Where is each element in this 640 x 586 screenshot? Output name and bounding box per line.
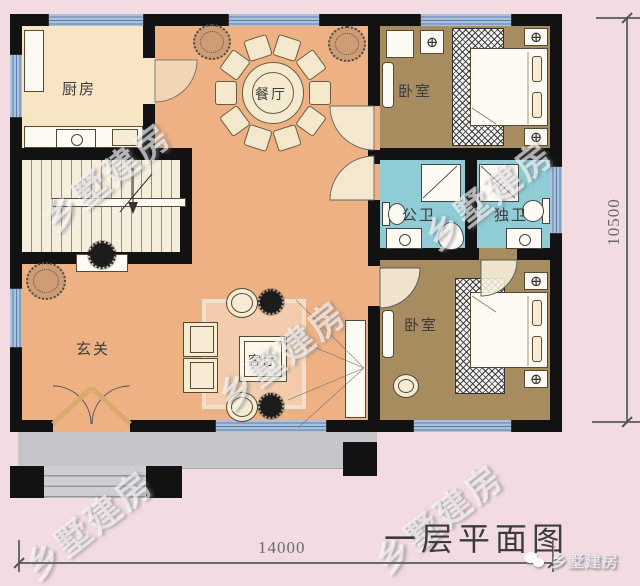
nightstand-lamp-icon: ⊕ — [524, 370, 548, 388]
dimension-ext-line — [596, 17, 640, 19]
porch-column-left — [10, 466, 44, 498]
plant-icon — [193, 24, 231, 60]
brand-bubbles-icon — [524, 552, 548, 569]
bath-sink — [386, 228, 422, 249]
dimension-label-bottom: 14000 — [258, 538, 306, 558]
armchair — [183, 322, 218, 357]
fridge — [24, 30, 44, 92]
room-label-bedroom-bottom: 卧室 — [404, 314, 438, 335]
side-cabinet — [382, 310, 394, 358]
bedroom-top-seat — [386, 30, 414, 58]
plant-icon — [260, 291, 282, 313]
nightstand-lamp-icon: ⊕ — [524, 28, 548, 46]
window-kitchen-left — [10, 54, 22, 118]
round-chair — [226, 288, 258, 318]
room-label-kitchen: 厨房 — [62, 78, 96, 99]
kitchen-door-opening — [143, 58, 155, 104]
nightstand-lamp-icon: ⊕ — [420, 30, 444, 54]
dining-chair — [215, 81, 237, 105]
kitchen-sink — [56, 129, 96, 148]
bedroom-bottom-door-opening — [368, 266, 380, 306]
window-bath-right — [550, 166, 562, 234]
plant-icon — [90, 243, 114, 267]
plant-icon — [328, 26, 366, 62]
brand-mark: 乡墅建房 — [524, 548, 619, 572]
side-cabinet — [382, 62, 394, 108]
window-bedroom-top — [420, 14, 512, 26]
bath-shared-door-opening — [368, 164, 380, 200]
room-label-entry: 玄关 — [76, 338, 110, 359]
bedroom-top-door-opening — [368, 106, 380, 150]
brand-name: 乡墅建房 — [551, 548, 619, 572]
wall-bath-bottom — [368, 248, 562, 260]
tv-cabinet — [345, 320, 366, 418]
pillow — [532, 92, 542, 118]
bath-sink — [506, 228, 542, 249]
room-label-bedroom-top: 卧室 — [398, 80, 432, 101]
dimension-ext-line — [592, 421, 640, 423]
porch-slab — [18, 430, 377, 469]
dining-chair — [309, 81, 331, 105]
bedroom-chair — [393, 374, 419, 398]
window-bedroom2-bottom — [413, 420, 512, 432]
entry-door-opening — [53, 420, 130, 432]
pillow — [532, 336, 542, 362]
nightstand-lamp-icon: ⊕ — [524, 272, 548, 290]
porch-column-right — [343, 442, 377, 476]
floor-plan-canvas: ⊕ ⊕ ⊕ ⊕ ⊕ — [0, 0, 640, 586]
dimension-ext-line — [18, 540, 20, 572]
pillow — [532, 300, 542, 326]
bath-ensuite-door-opening — [479, 248, 517, 260]
pillow — [532, 56, 542, 82]
window-dining-top — [228, 14, 320, 26]
dimension-label-right: 10500 — [604, 194, 624, 250]
dimension-line-bottom — [18, 562, 553, 564]
window-living-bottom — [215, 420, 327, 432]
plant-icon — [26, 262, 66, 300]
room-label-dining: 餐厅 — [255, 84, 287, 104]
window-hall-left — [10, 288, 22, 348]
window-kitchen-top — [48, 14, 144, 26]
dimension-line-right — [626, 18, 628, 422]
